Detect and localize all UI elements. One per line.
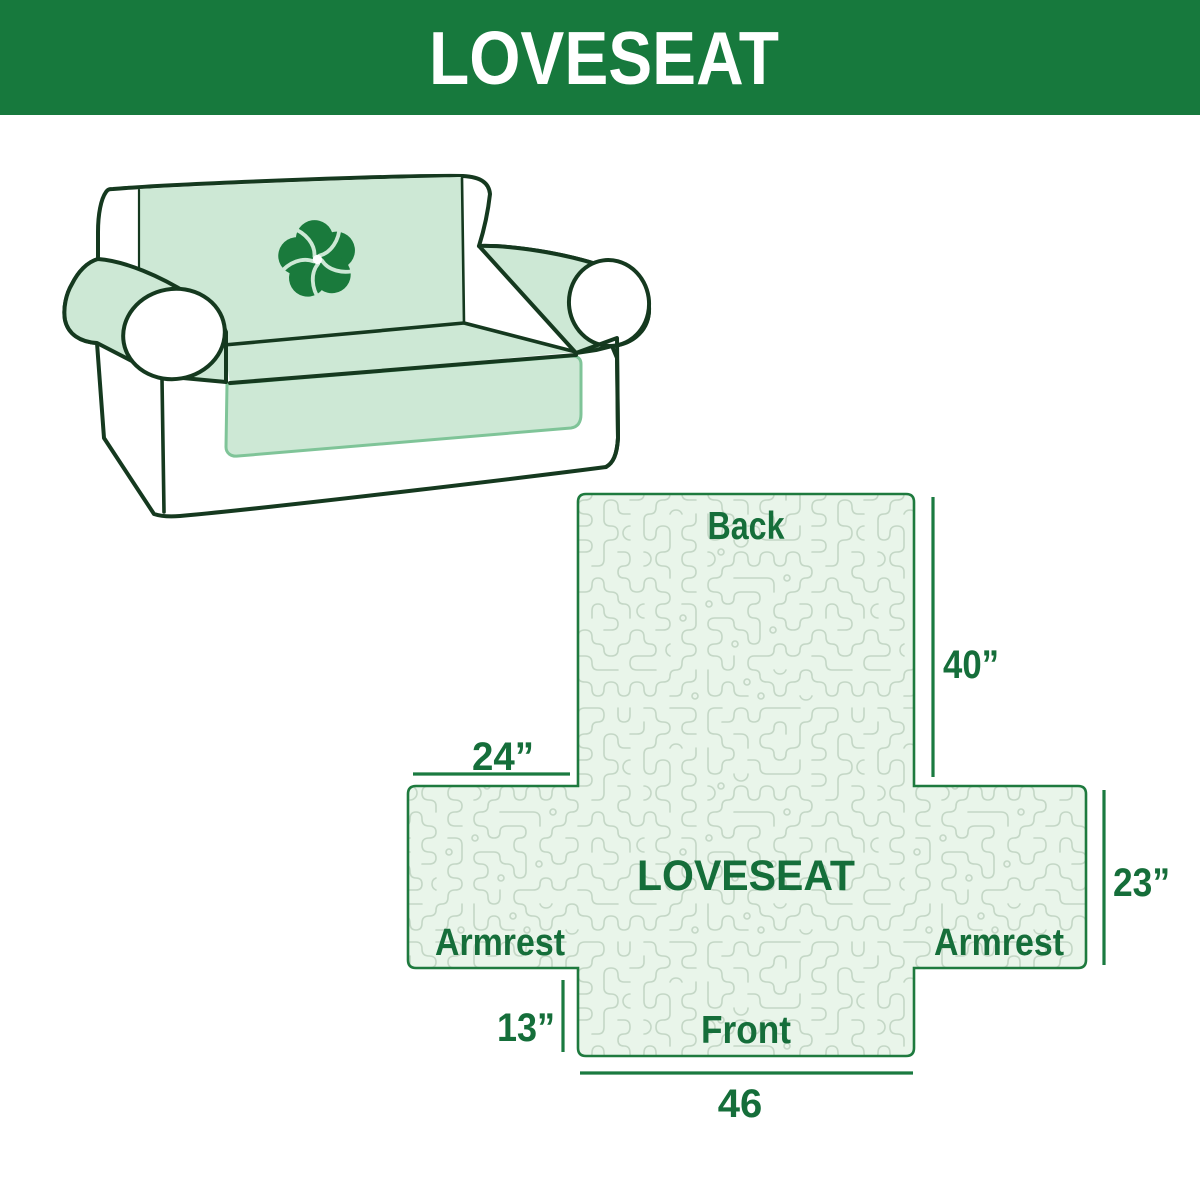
svg-text:40”: 40” [943,643,999,687]
svg-text:Armrest: Armrest [435,922,565,964]
svg-text:24”: 24” [472,735,534,779]
svg-text:13”: 13” [497,1006,555,1050]
svg-text:LOVESEAT: LOVESEAT [637,852,855,900]
svg-text:46: 46 [718,1082,763,1126]
svg-text:23”: 23” [1113,861,1170,905]
svg-text:Front: Front [701,1009,791,1052]
svg-text:Armrest: Armrest [934,922,1064,964]
svg-text:Back: Back [708,505,785,548]
svg-text:LOVESEAT: LOVESEAT [429,16,779,100]
